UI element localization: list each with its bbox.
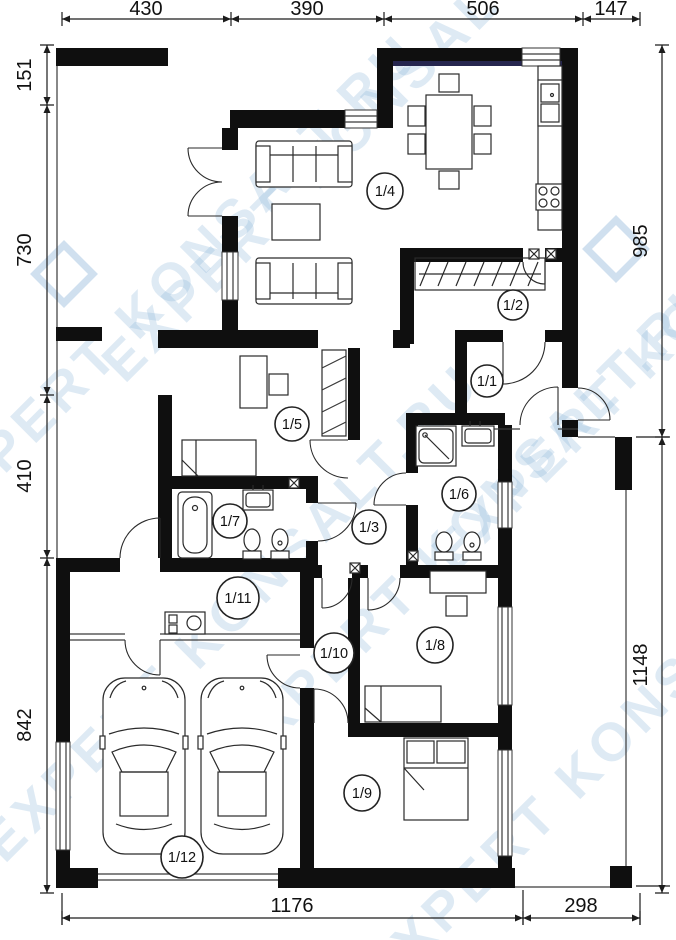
chair (474, 134, 491, 154)
window (498, 482, 512, 528)
vent-shaft (350, 563, 360, 573)
door (314, 689, 348, 723)
room-label-1-8: 1/8 (417, 627, 453, 663)
door (318, 503, 356, 541)
dining-table (426, 95, 472, 169)
door-arcs (120, 148, 610, 723)
room-label-1-2: 1/2 (498, 290, 528, 320)
floor-plan-svg: 1/1 1/2 1/3 1/4 1/5 1/6 1/7 1/8 1/9 1/10… (0, 0, 676, 940)
room-label-1-10: 1/10 (314, 633, 354, 673)
dimension-right: 985 1148 (630, 45, 670, 893)
floor-plan-canvas: EXPERT KONSALT.RU EXPERT KONSALT.RU EXPE… (0, 0, 676, 940)
room-number: 1/9 (352, 786, 372, 802)
vent-shaft (529, 249, 539, 259)
bed (365, 686, 441, 722)
car (100, 678, 188, 854)
sofa (256, 258, 352, 304)
window (522, 48, 560, 66)
chair (439, 171, 459, 189)
toilet (243, 529, 261, 559)
wardrobe-rail (415, 258, 545, 290)
dim-value: 298 (564, 895, 597, 917)
room-number: 1/2 (503, 298, 523, 314)
room-number: 1/6 (449, 487, 469, 503)
dim-value: 506 (466, 0, 499, 20)
desk (240, 356, 267, 408)
window (498, 750, 512, 856)
stove (536, 184, 562, 210)
coffee-table (272, 204, 320, 240)
dimension-left: 151 730 410 842 (14, 45, 54, 893)
room-number: 1/1 (477, 374, 497, 390)
wardrobe (322, 350, 346, 436)
chair (474, 106, 491, 126)
room-number: 1/10 (320, 646, 348, 662)
chair (446, 596, 467, 616)
chair (408, 134, 425, 154)
room-label-1-4: 1/4 (367, 173, 403, 209)
window (345, 110, 377, 128)
sofa (256, 141, 352, 187)
dim-value: 430 (129, 0, 162, 20)
window (222, 252, 238, 300)
chair (269, 374, 288, 395)
room-number: 1/8 (425, 638, 445, 654)
vent-shaft (408, 551, 418, 561)
chair (408, 106, 425, 126)
room-number: 1/12 (168, 850, 196, 866)
desk (430, 571, 486, 593)
bathtub (178, 492, 212, 558)
door (520, 387, 558, 425)
room-label-1-7: 1/7 (213, 504, 247, 538)
door (578, 388, 610, 420)
bed (182, 440, 256, 476)
dimension-bottom: 1176 298 (62, 890, 640, 925)
dimension-top: 430 390 506 147 (62, 0, 640, 26)
room-number: 1/5 (282, 417, 302, 433)
door (125, 640, 160, 675)
door (310, 440, 348, 478)
room-number: 1/4 (375, 184, 395, 200)
door (374, 473, 406, 505)
dim-value: 147 (594, 0, 627, 20)
room-label-1-5: 1/5 (275, 407, 309, 441)
door (503, 342, 545, 384)
dim-value: 730 (14, 233, 36, 266)
dim-value: 151 (14, 58, 36, 91)
bidet (463, 532, 481, 560)
kitchen-sink (538, 80, 562, 126)
car (198, 678, 286, 854)
window (498, 607, 512, 705)
room-label-1-6: 1/6 (442, 477, 476, 511)
dim-value: 390 (290, 0, 323, 20)
shower (416, 426, 456, 466)
door (188, 182, 222, 216)
bidet (271, 529, 289, 559)
room-number: 1/11 (224, 591, 251, 607)
door (322, 578, 352, 608)
vent-shaft (546, 249, 556, 259)
room-label-1-9: 1/9 (344, 775, 380, 811)
double-bed (404, 738, 468, 820)
dim-value: 1148 (630, 643, 652, 686)
room-label-1-12: 1/12 (161, 836, 203, 878)
dim-value: 1176 (270, 895, 313, 917)
boiler (165, 612, 205, 634)
room-number: 1/3 (359, 520, 379, 536)
window (56, 742, 70, 850)
vent-shaft (289, 478, 299, 488)
dim-value: 842 (14, 708, 36, 741)
door (188, 148, 222, 182)
room-label-1-3: 1/3 (352, 510, 386, 544)
room-label-1-11: 1/11 (217, 577, 259, 619)
door (120, 518, 160, 558)
dim-value: 410 (14, 459, 36, 492)
dim-value: 985 (630, 224, 652, 257)
room-label-1-1: 1/1 (471, 365, 503, 397)
chair (439, 74, 459, 92)
toilet (435, 532, 453, 560)
door (368, 578, 400, 610)
room-number: 1/7 (220, 514, 240, 530)
